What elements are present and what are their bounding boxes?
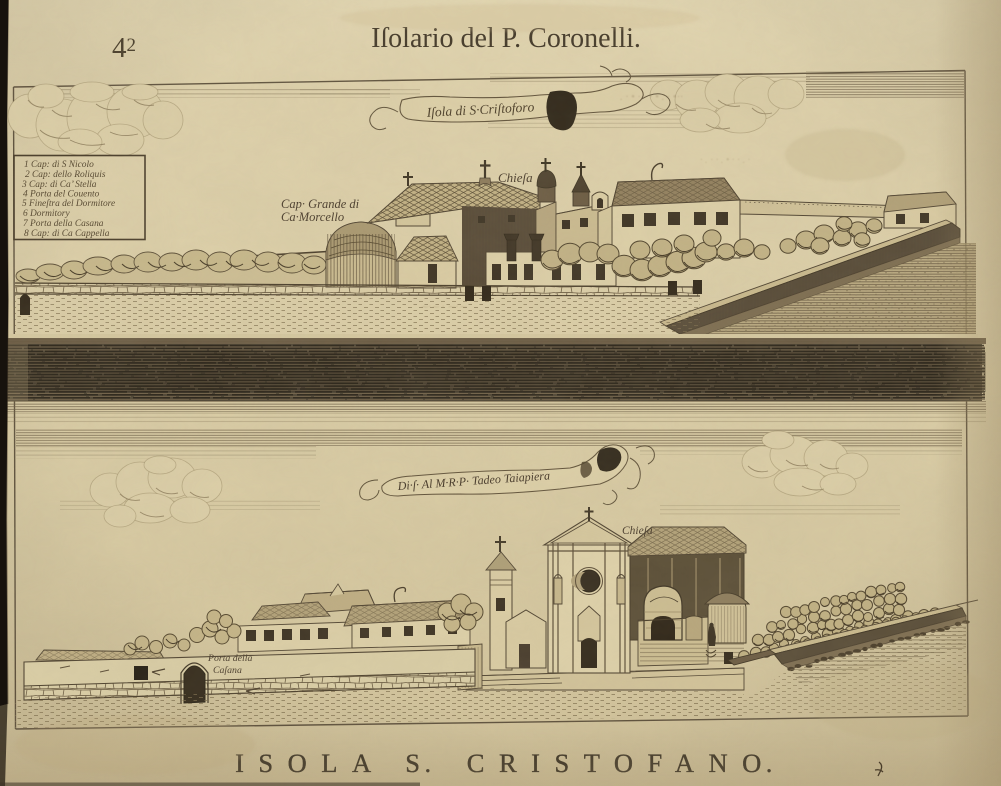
svg-text:∼·∼ · ∼·∼: ∼·∼ · ∼·∼: [420, 302, 467, 313]
svg-text:· . · · . • · · . ·: · . · · . • · · . ·: [700, 155, 750, 166]
svg-text:. · • · · · • . · •··: . · • · · · • . · •··: [620, 91, 683, 103]
